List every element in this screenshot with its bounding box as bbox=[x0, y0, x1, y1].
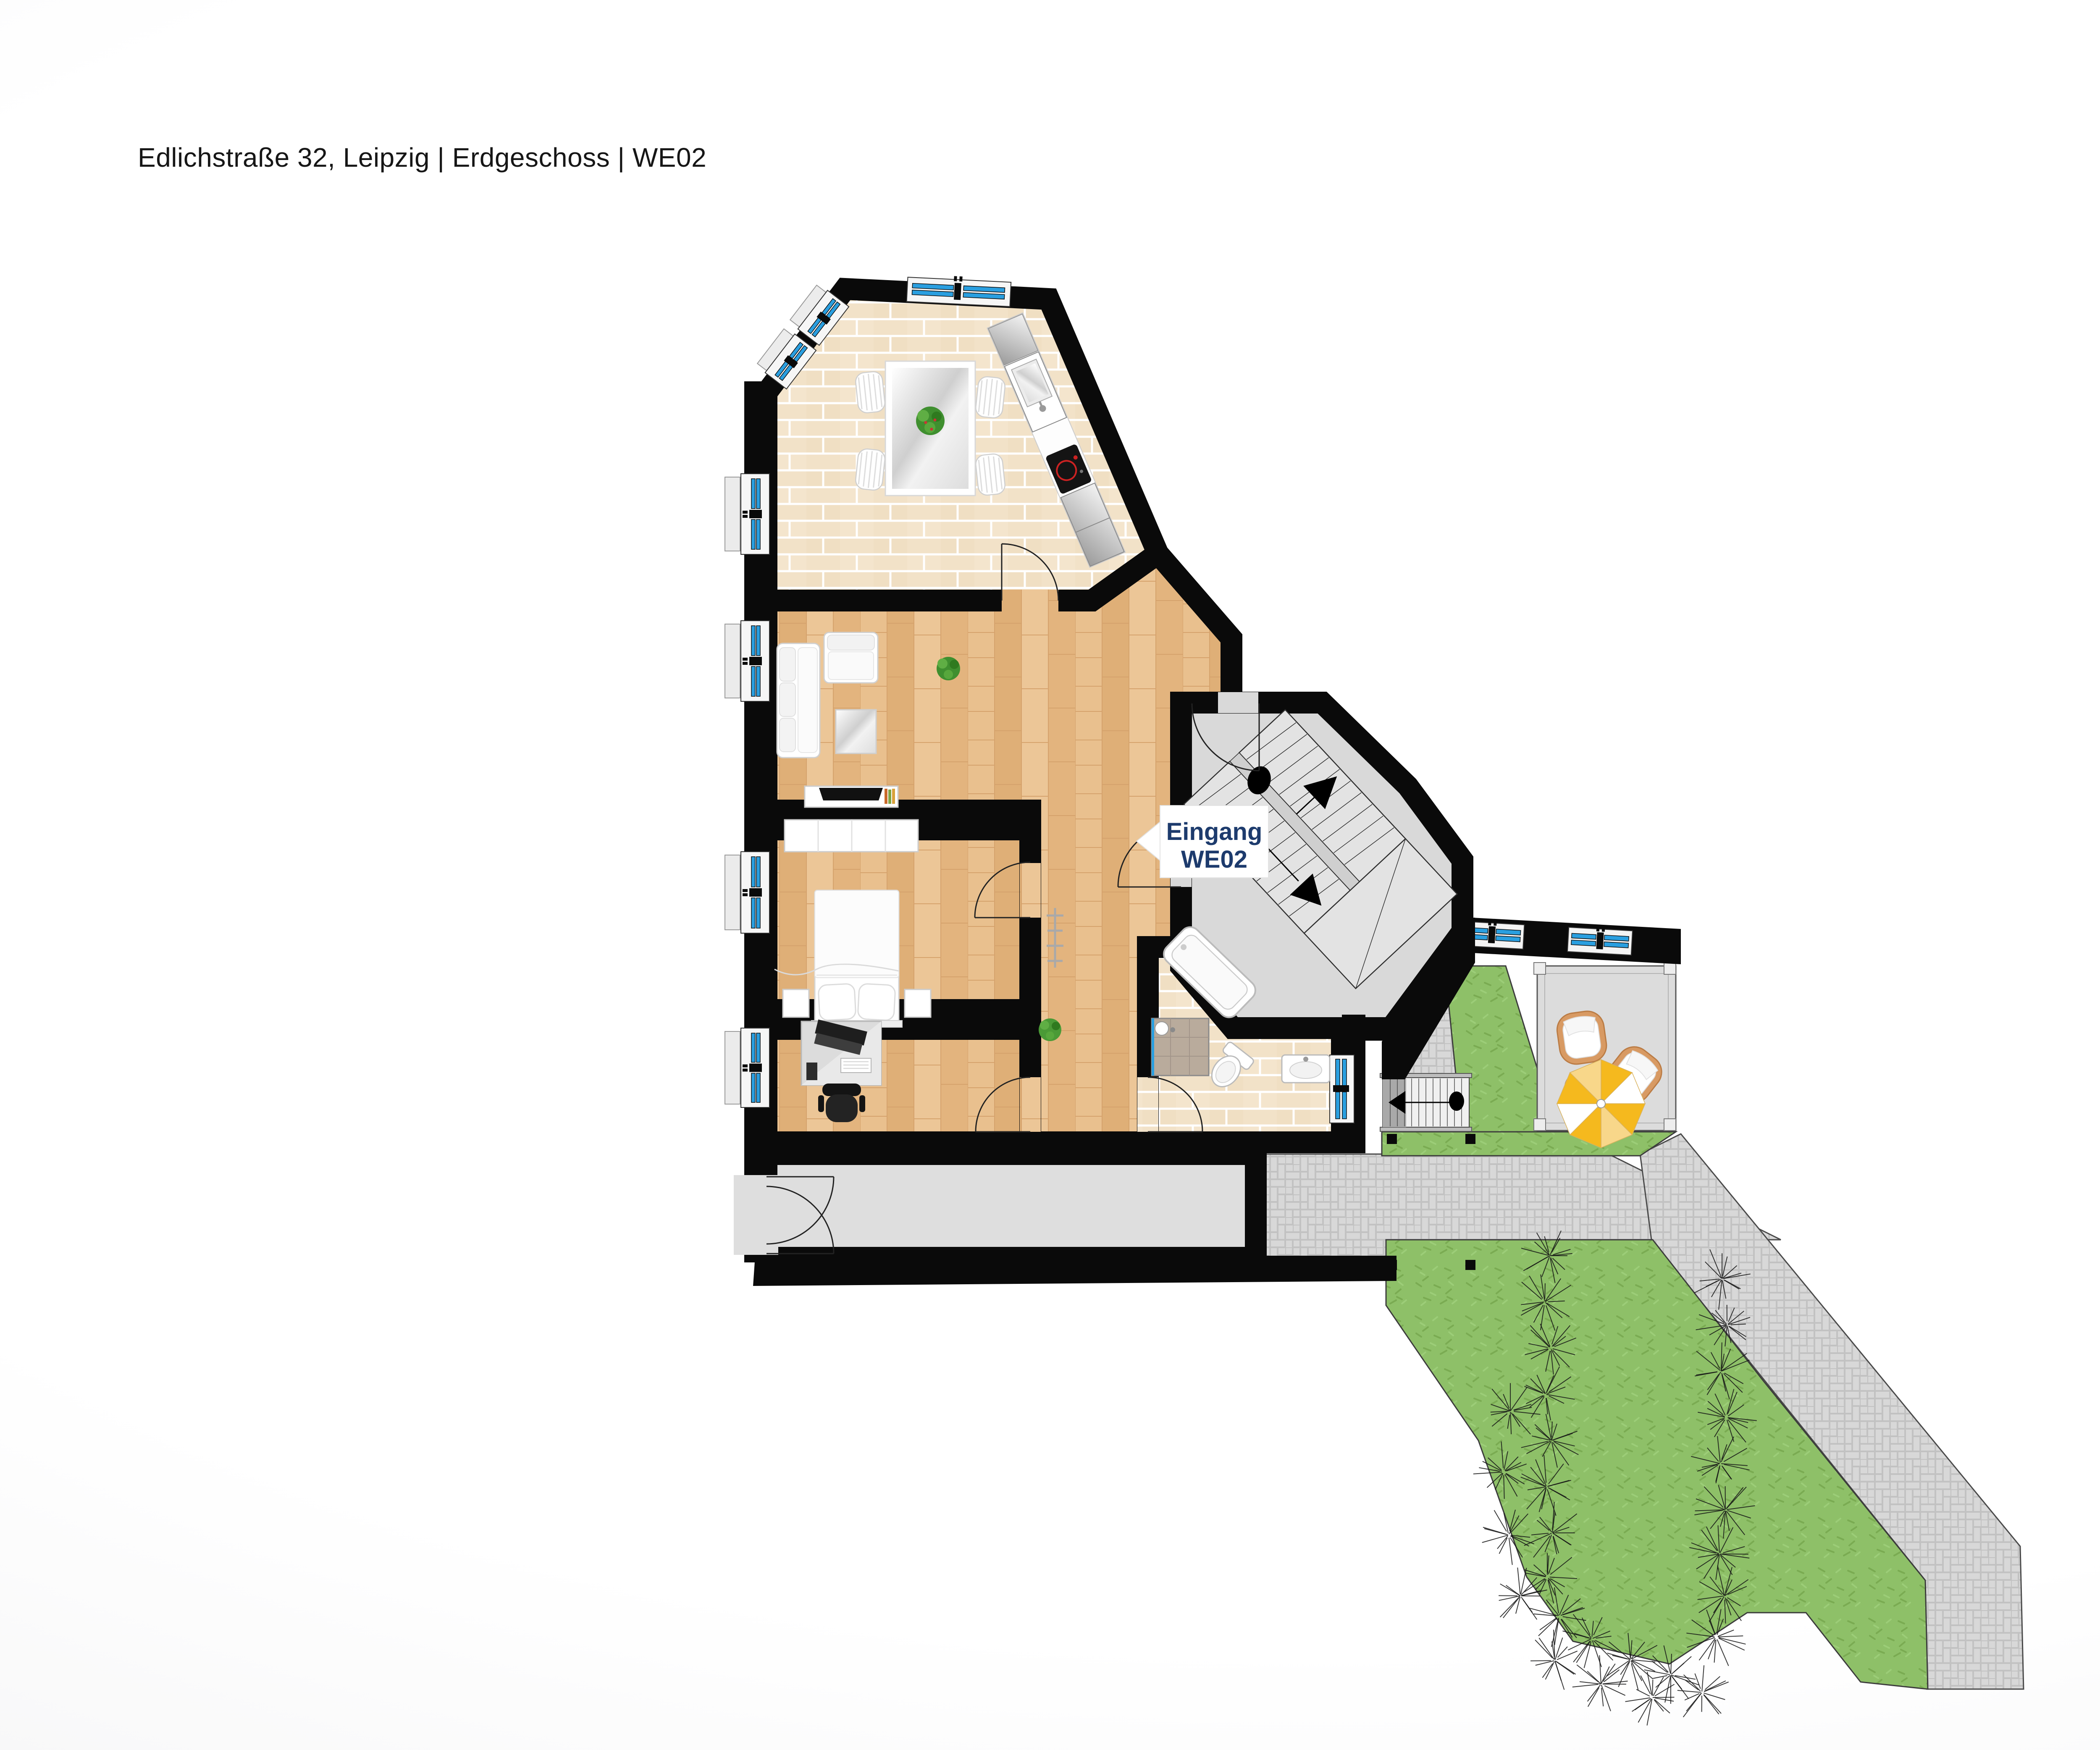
building: Eingang WE02 bbox=[725, 274, 1462, 1286]
dining-chair bbox=[975, 453, 1006, 496]
tablet bbox=[806, 1063, 817, 1080]
cellar-stair bbox=[1380, 1073, 1472, 1131]
plant-icon bbox=[1039, 1018, 1061, 1041]
bathroom-exterior-door bbox=[1330, 1055, 1354, 1123]
terrace bbox=[1534, 963, 1676, 1148]
shower bbox=[1152, 1018, 1209, 1076]
shrub-icon bbox=[1572, 1655, 1628, 1711]
plant-icon bbox=[937, 657, 960, 680]
dining-chair bbox=[975, 376, 1006, 419]
floorplan-page: Eingang WE02 Edlichstraße 32, Leipzig | … bbox=[0, 0, 2100, 1750]
shrub-icon bbox=[1625, 1672, 1675, 1726]
parasol-icon bbox=[1557, 1060, 1645, 1148]
floorplan-drawing: Eingang WE02 bbox=[0, 0, 2100, 1750]
table-plant-icon bbox=[916, 407, 945, 435]
coffee-table bbox=[836, 710, 876, 753]
desk bbox=[801, 1020, 881, 1085]
dining-chair bbox=[855, 371, 886, 414]
room-basement-gray bbox=[766, 1154, 1256, 1258]
tv-sideboard bbox=[805, 786, 898, 807]
tv bbox=[819, 788, 883, 800]
left-wall-window bbox=[725, 852, 769, 933]
nightstand bbox=[783, 989, 809, 1017]
top-wall-window bbox=[907, 274, 1011, 307]
wardrobe bbox=[785, 820, 918, 852]
entrance-label-line2: WE02 bbox=[1181, 846, 1247, 873]
dining-chair bbox=[855, 448, 886, 491]
terrace-chair bbox=[1555, 1009, 1609, 1066]
page-title: Edlichstraße 32, Leipzig | Erdgeschoss |… bbox=[138, 142, 706, 173]
sofa bbox=[777, 643, 820, 758]
left-wall-window bbox=[725, 1028, 769, 1107]
bathroom-sink bbox=[1282, 1055, 1330, 1083]
armchair bbox=[824, 632, 878, 683]
entrance-label-line1: Eingang bbox=[1166, 818, 1263, 845]
bollard-icon bbox=[1449, 1091, 1464, 1111]
shrub-icon bbox=[1677, 1665, 1729, 1717]
left-wall-window bbox=[725, 621, 769, 701]
left-wall-window bbox=[725, 474, 769, 554]
nightstand bbox=[905, 989, 931, 1017]
